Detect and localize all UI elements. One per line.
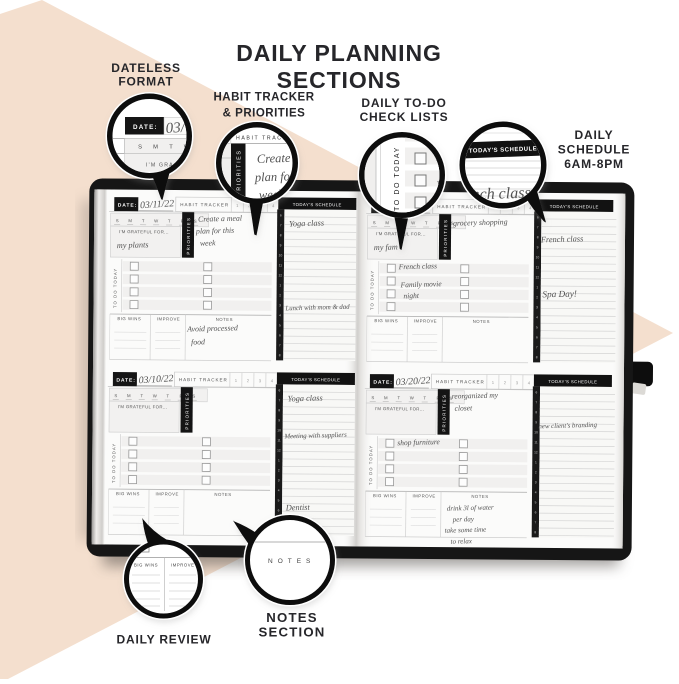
svg-text:7: 7 xyxy=(534,520,536,524)
svg-text:PRIORITIES: PRIORITIES xyxy=(443,219,448,257)
svg-text:Dentist: Dentist xyxy=(285,503,311,513)
svg-text:food: food xyxy=(191,337,205,346)
svg-text:3: 3 xyxy=(279,303,281,307)
svg-text:NOTES: NOTES xyxy=(216,317,233,322)
svg-text:T: T xyxy=(423,395,426,400)
svg-text:Family movie: Family movie xyxy=(399,279,442,289)
svg-text:DAILY TO-DO: DAILY TO-DO xyxy=(361,96,446,110)
svg-text:M: M xyxy=(384,395,388,400)
svg-text:HABIT TRACKER: HABIT TRACKER xyxy=(436,379,485,384)
svg-text:6: 6 xyxy=(535,510,537,514)
svg-text:PRIORITIES: PRIORITIES xyxy=(442,394,447,432)
svg-text:French class: French class xyxy=(398,261,438,271)
svg-text:BIG WINS: BIG WINS xyxy=(374,318,398,323)
svg-text:6: 6 xyxy=(279,388,281,392)
svg-text:6: 6 xyxy=(537,215,539,219)
svg-text:reorganized my: reorganized my xyxy=(452,390,499,400)
svg-text:DATELESS: DATELESS xyxy=(111,61,181,75)
svg-text:12: 12 xyxy=(279,273,283,277)
svg-text:10: 10 xyxy=(536,255,540,259)
svg-text:BIG WINS: BIG WINS xyxy=(134,563,158,568)
svg-text:Spa Day!: Spa Day! xyxy=(542,289,577,300)
svg-text:my fam: my fam xyxy=(374,242,398,252)
svg-text:per day: per day xyxy=(452,515,475,524)
svg-text:10: 10 xyxy=(277,428,281,432)
svg-text:NOTES: NOTES xyxy=(473,319,490,324)
svg-text:4: 4 xyxy=(278,488,280,492)
svg-text:6AM-8PM: 6AM-8PM xyxy=(564,157,624,171)
svg-text:T: T xyxy=(168,218,171,223)
svg-text:HABIT TRACKER: HABIT TRACKER xyxy=(180,202,229,207)
svg-text:6: 6 xyxy=(536,390,538,394)
svg-text:8: 8 xyxy=(536,355,538,359)
svg-text:S: S xyxy=(373,220,376,225)
svg-text:T: T xyxy=(140,393,143,398)
svg-text:4: 4 xyxy=(535,490,537,494)
svg-text:6: 6 xyxy=(279,333,281,337)
svg-text:11: 11 xyxy=(277,438,281,442)
svg-text:take some time: take some time xyxy=(445,526,487,535)
svg-text:5: 5 xyxy=(536,325,538,329)
svg-text:S: S xyxy=(138,145,142,151)
svg-text:DAILY REVIEW: DAILY REVIEW xyxy=(117,633,212,647)
svg-text:4: 4 xyxy=(279,313,281,317)
svg-text:HABIT TRACKER: HABIT TRACKER xyxy=(213,92,314,104)
svg-text:3: 3 xyxy=(536,305,538,309)
svg-text:DAILY: DAILY xyxy=(575,128,614,142)
svg-text:SECTIONS: SECTIONS xyxy=(277,67,402,93)
svg-text:IMPROVE: IMPROVE xyxy=(412,493,435,498)
svg-text:IMPROVE: IMPROVE xyxy=(155,491,178,496)
svg-text:6: 6 xyxy=(536,335,538,339)
svg-text:SECTION: SECTION xyxy=(258,625,325,640)
svg-text:4: 4 xyxy=(536,315,538,319)
svg-text:IMPROVE: IMPROVE xyxy=(171,563,195,568)
svg-text:shop furniture: shop furniture xyxy=(397,437,440,447)
svg-text:6: 6 xyxy=(278,508,280,512)
svg-text:TODAY'S SCHEDULE: TODAY'S SCHEDULE xyxy=(293,202,342,207)
svg-text:S: S xyxy=(371,395,374,400)
svg-text:my plants: my plants xyxy=(117,240,149,250)
svg-text:TODAY'S SCHEDULE: TODAY'S SCHEDULE xyxy=(550,204,599,209)
svg-text:I'M GRATEFUL FOR...: I'M GRATEFUL FOR... xyxy=(118,404,168,409)
svg-text:grocery shopping: grocery shopping xyxy=(453,217,508,227)
svg-text:SCHEDULE: SCHEDULE xyxy=(558,143,630,157)
svg-text:7: 7 xyxy=(279,343,281,347)
svg-text:10: 10 xyxy=(279,253,283,257)
svg-text:TODAY'S SCHEDULE: TODAY'S SCHEDULE xyxy=(548,379,597,384)
svg-text:11: 11 xyxy=(536,265,540,269)
svg-text:2: 2 xyxy=(278,468,280,472)
svg-text:1: 1 xyxy=(536,285,538,289)
svg-text:2: 2 xyxy=(536,295,538,299)
svg-text:M: M xyxy=(128,218,132,223)
svg-text:& PRIORITIES: & PRIORITIES xyxy=(223,107,306,119)
svg-text:DATE:: DATE: xyxy=(116,378,135,384)
svg-text:8: 8 xyxy=(537,235,539,239)
svg-text:8: 8 xyxy=(535,410,537,414)
svg-text:9: 9 xyxy=(280,243,282,247)
svg-text:CHECK LISTS: CHECK LISTS xyxy=(360,110,449,124)
svg-text:BIG WINS: BIG WINS xyxy=(373,493,397,498)
svg-text:closet: closet xyxy=(454,403,473,412)
svg-text:NOTES: NOTES xyxy=(214,492,231,497)
svg-text:T: T xyxy=(397,395,400,400)
svg-text:03/20/22: 03/20/22 xyxy=(395,375,431,388)
svg-text:12: 12 xyxy=(277,448,281,452)
svg-text:IMPROVE: IMPROVE xyxy=(157,316,180,321)
svg-text:2: 2 xyxy=(279,293,281,297)
svg-text:11: 11 xyxy=(279,263,283,267)
svg-text:1: 1 xyxy=(278,458,280,462)
svg-text:I'M GRATEFUL FOR...: I'M GRATEFUL FOR... xyxy=(375,406,425,411)
svg-text:8: 8 xyxy=(279,353,281,357)
svg-text:TO DO TODAY: TO DO TODAY xyxy=(394,146,401,211)
svg-text:DATE:: DATE: xyxy=(373,380,392,386)
svg-text:BIG WINS: BIG WINS xyxy=(117,316,141,321)
svg-text:2: 2 xyxy=(535,470,537,474)
svg-text:NOTES: NOTES xyxy=(266,610,317,625)
svg-text:PRIORITIES: PRIORITIES xyxy=(237,149,243,196)
svg-text:FORMAT: FORMAT xyxy=(118,75,173,89)
svg-text:1: 1 xyxy=(535,460,537,464)
svg-text:3: 3 xyxy=(535,480,537,484)
svg-text:T: T xyxy=(166,393,169,398)
svg-text:HABIT TRACKER: HABIT TRACKER xyxy=(179,377,228,382)
svg-text:DATE:: DATE: xyxy=(133,124,158,131)
svg-text:7: 7 xyxy=(536,345,538,349)
svg-text:TO DO TODAY: TO DO TODAY xyxy=(368,445,373,485)
svg-text:7: 7 xyxy=(280,223,282,227)
svg-text:7: 7 xyxy=(537,225,539,229)
svg-text:IMPROVE: IMPROVE xyxy=(414,318,437,323)
svg-text:Avoid processed: Avoid processed xyxy=(186,323,238,333)
svg-text:M: M xyxy=(385,220,389,225)
svg-text:T: T xyxy=(425,221,428,226)
svg-text:6: 6 xyxy=(280,213,282,217)
svg-text:8: 8 xyxy=(534,530,536,534)
svg-text:8: 8 xyxy=(280,233,282,237)
svg-text:DAILY PLANNING: DAILY PLANNING xyxy=(236,40,442,66)
svg-text:M: M xyxy=(127,393,131,398)
svg-text:week: week xyxy=(200,238,216,247)
svg-text:9: 9 xyxy=(535,420,537,424)
svg-text:I'M GRATEFUL FOR...: I'M GRATEFUL FOR... xyxy=(119,229,169,234)
svg-text:TO DO TODAY: TO DO TODAY xyxy=(112,268,117,308)
svg-text:12: 12 xyxy=(536,275,540,279)
svg-text:NOTES: NOTES xyxy=(471,494,488,499)
svg-text:Yoga class: Yoga class xyxy=(288,393,323,403)
svg-text:T: T xyxy=(169,145,173,151)
svg-text:9: 9 xyxy=(537,245,539,249)
svg-text:03/11/22: 03/11/22 xyxy=(140,198,175,211)
svg-text:5: 5 xyxy=(278,498,280,502)
svg-text:Yoga class: Yoga class xyxy=(289,218,324,228)
svg-text:5: 5 xyxy=(535,500,537,504)
svg-text:S: S xyxy=(116,218,119,223)
svg-text:French class: French class xyxy=(540,234,584,244)
svg-text:night: night xyxy=(403,291,420,300)
svg-text:11: 11 xyxy=(534,440,538,444)
svg-text:8: 8 xyxy=(278,408,280,412)
svg-text:PRIORITIES: PRIORITIES xyxy=(186,217,191,255)
svg-text:7: 7 xyxy=(535,400,537,404)
svg-text:Create a meal: Create a meal xyxy=(198,214,242,224)
svg-text:03/10/22: 03/10/22 xyxy=(138,373,174,386)
svg-text:HABIT TRACKER: HABIT TRACKER xyxy=(437,204,486,209)
svg-text:M: M xyxy=(153,145,158,151)
svg-text:10: 10 xyxy=(534,430,538,434)
svg-text:DATE:: DATE: xyxy=(118,203,137,209)
svg-text:3: 3 xyxy=(278,478,280,482)
svg-text:1: 1 xyxy=(279,283,281,287)
svg-text:drink 3l of water: drink 3l of water xyxy=(447,503,494,512)
svg-text:BIG WINS: BIG WINS xyxy=(116,491,140,496)
svg-text:9: 9 xyxy=(278,418,280,422)
svg-text:S: S xyxy=(114,393,117,398)
svg-text:TO DO TODAY: TO DO TODAY xyxy=(369,270,374,310)
svg-text:TODAY'S SCHEDULE: TODAY'S SCHEDULE xyxy=(291,377,340,382)
svg-text:5: 5 xyxy=(279,323,281,327)
svg-text:NOTES: NOTES xyxy=(268,558,315,565)
svg-text:PRIORITIES: PRIORITIES xyxy=(185,392,190,430)
svg-text:T: T xyxy=(142,218,145,223)
svg-text:7: 7 xyxy=(278,398,280,402)
svg-text:TO DO TODAY: TO DO TODAY xyxy=(111,443,116,483)
svg-text:plan for this: plan for this xyxy=(195,226,234,236)
svg-text:to relax: to relax xyxy=(450,537,472,546)
svg-text:12: 12 xyxy=(534,450,538,454)
